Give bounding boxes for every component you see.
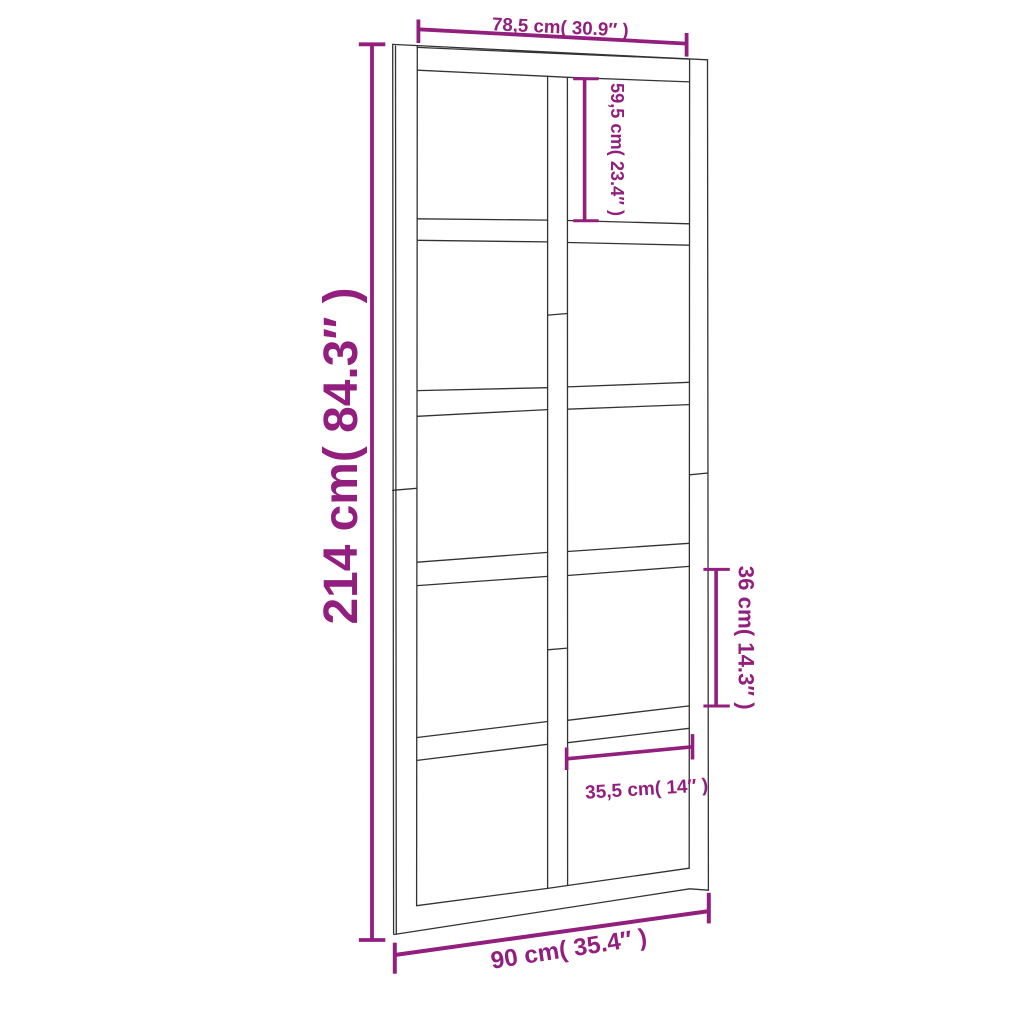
svg-text:59,5 cm( 23.4″ ): 59,5 cm( 23.4″ )	[607, 83, 627, 216]
svg-text:36 cm( 14.3″ ): 36 cm( 14.3″ )	[733, 566, 758, 710]
svg-text:214 cm( 84.3″ ): 214 cm( 84.3″ )	[315, 287, 368, 624]
